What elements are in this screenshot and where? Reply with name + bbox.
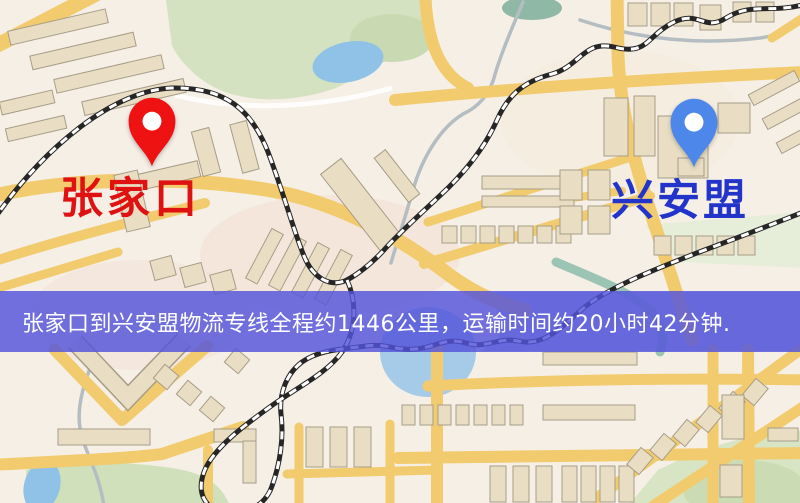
destination-location-pin-icon[interactable] [667,96,721,170]
pin-body [671,99,718,167]
route-banner: 张家口到兴安盟物流专线全程约1446公里，运输时间约20小时42分钟. [0,291,800,352]
pin-hole [143,112,162,131]
pin-body [129,98,176,166]
route-banner-text: 张家口到兴安盟物流专线全程约1446公里，运输时间约20小时42分钟. [22,306,730,338]
origin-label: 张家口 [60,178,201,221]
pin-hole [685,113,704,132]
destination-label: 兴安盟 [611,180,749,223]
origin-location-pin-icon[interactable] [125,95,179,169]
logistics-route-map[interactable]: 张家口 兴安盟 张家口到兴安盟物流专线全程约1446公里，运输时间约20小时42… [0,0,800,503]
map-canvas [0,0,800,503]
